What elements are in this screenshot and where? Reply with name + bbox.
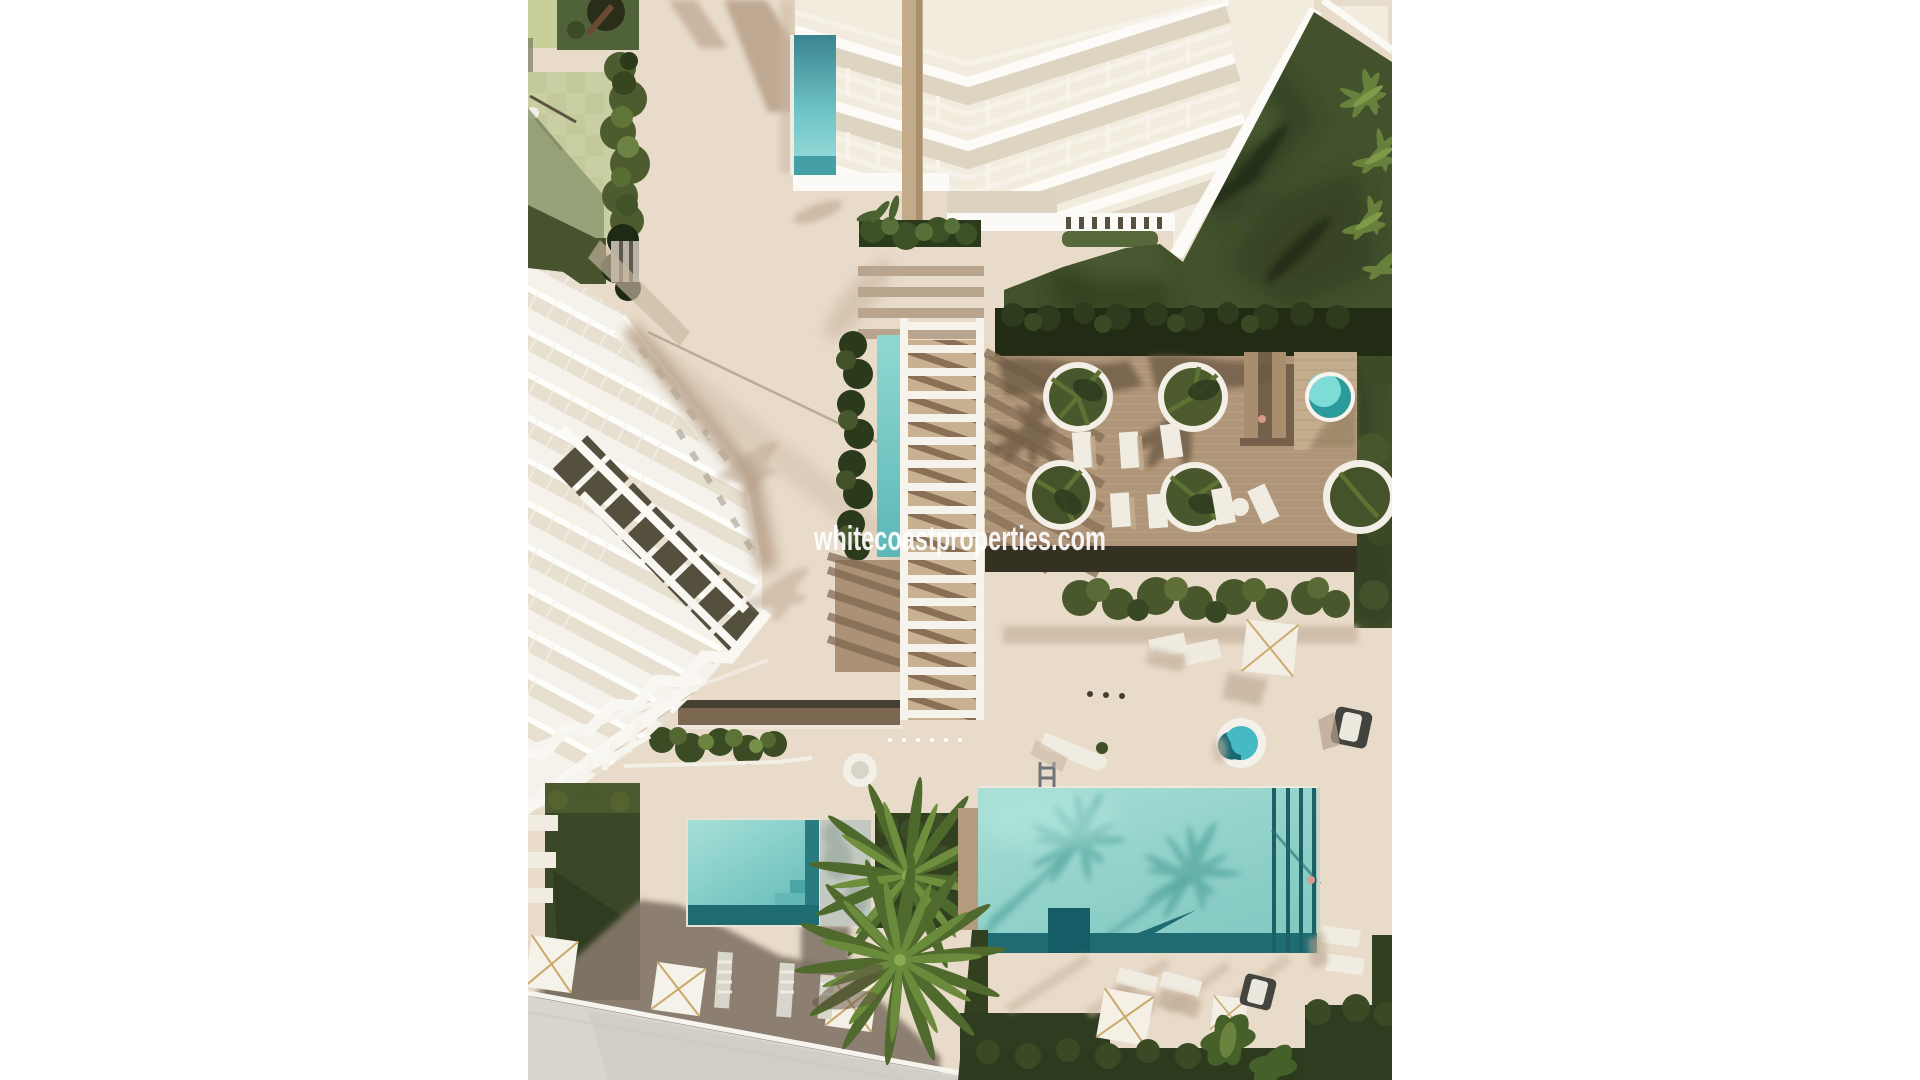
svg-text:whitecoastproperties.com: whitecoastproperties.com <box>813 520 1106 558</box>
